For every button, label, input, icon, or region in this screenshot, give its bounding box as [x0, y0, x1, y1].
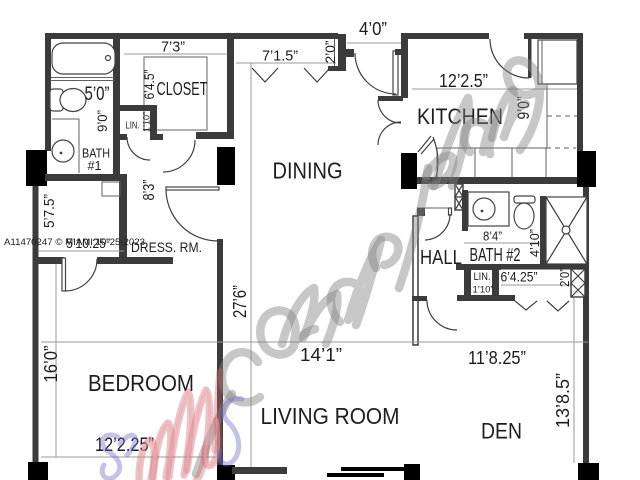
svg-text:#1: #1 — [88, 159, 102, 173]
svg-text:27’6”: 27’6” — [230, 285, 250, 318]
svg-text:A11470247 © MIAMI 10-25-2023: A11470247 © MIAMI 10-25-2023 — [4, 237, 145, 248]
svg-text:12’2.5”: 12’2.5” — [439, 70, 488, 91]
svg-text:5’0”: 5’0” — [85, 84, 110, 105]
svg-text:4’10”: 4’10” — [527, 229, 542, 257]
svg-text:7’1.5”: 7’1.5” — [262, 48, 298, 65]
svg-text:DEN: DEN — [481, 419, 522, 444]
svg-text:8’3”: 8’3” — [141, 180, 158, 201]
svg-text:9’0”: 9’0” — [94, 110, 110, 132]
svg-text:LIVING ROOM: LIVING ROOM — [261, 403, 400, 429]
svg-text:6’4.25”: 6’4.25” — [501, 269, 538, 285]
svg-text:HALL: HALL — [420, 247, 462, 269]
svg-text:DINING: DINING — [273, 158, 343, 184]
svg-text:LIN.: LIN. — [126, 120, 140, 132]
svg-text:LIN.: LIN. — [474, 271, 491, 283]
svg-text:7’3”: 7’3” — [161, 39, 185, 56]
svg-text:8’4”: 8’4” — [483, 229, 502, 244]
svg-text:16’0”: 16’0” — [41, 346, 61, 383]
svg-text:5’7.5”: 5’7.5” — [41, 194, 58, 228]
svg-text:CLOSET: CLOSET — [157, 79, 208, 99]
svg-text:6’4.5”: 6’4.5” — [141, 69, 157, 99]
svg-text:4’0”: 4’0” — [359, 19, 387, 39]
svg-text:14’1”: 14’1” — [300, 345, 342, 365]
svg-text:13’8.5”: 13’8.5” — [553, 373, 573, 428]
svg-text:11’8.25”: 11’8.25” — [468, 348, 526, 368]
svg-text:BEDROOM: BEDROOM — [88, 370, 194, 396]
svg-text:BATH #2: BATH #2 — [470, 245, 521, 265]
svg-text:1’10”: 1’10” — [142, 112, 152, 132]
svg-text:2’0”: 2’0” — [557, 268, 572, 287]
svg-text:2’0”: 2’0” — [322, 40, 338, 63]
svg-text:1’10”: 1’10” — [472, 285, 493, 296]
